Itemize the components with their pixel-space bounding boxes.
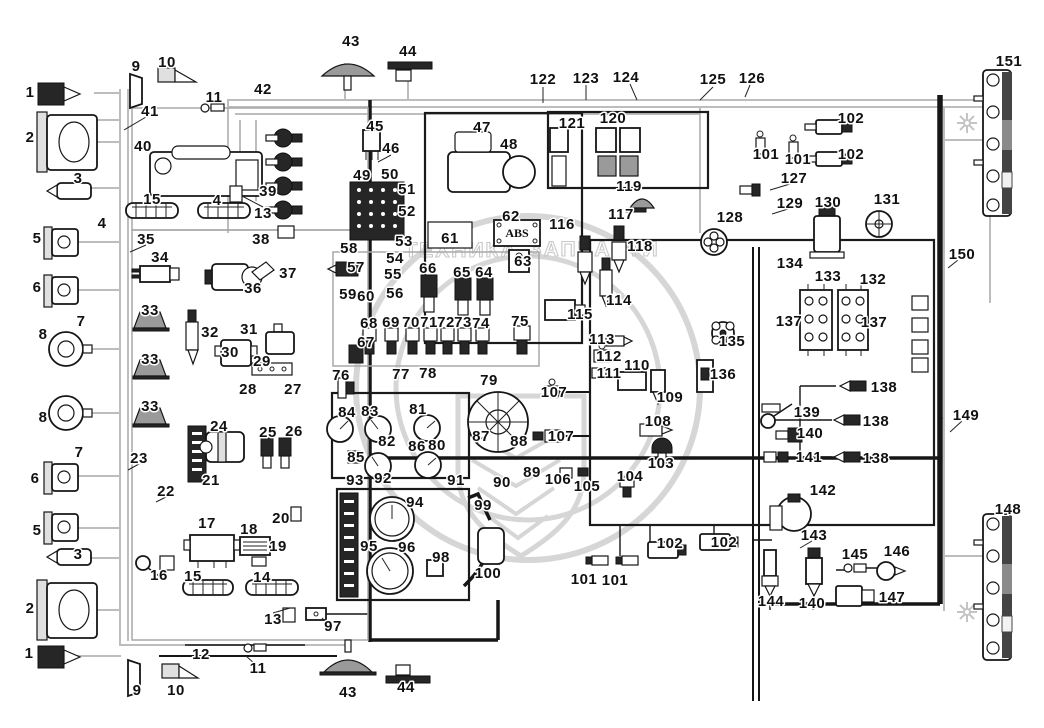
callout-121: 121: [559, 115, 586, 132]
callout-115: 115: [567, 306, 593, 323]
callout-92: 92: [374, 470, 392, 487]
callout-146: 146: [884, 543, 911, 560]
compressor: [770, 494, 811, 531]
solenoid: [810, 206, 844, 258]
callout-48: 48: [500, 136, 518, 153]
callout-6: 6: [33, 279, 42, 296]
callout-61: 61: [441, 230, 459, 247]
callout-139: 139: [794, 404, 821, 421]
callout-141: 141: [796, 449, 823, 466]
callout-33: 33: [141, 398, 159, 415]
callout-3: 3: [74, 546, 83, 563]
marker-lamp: [44, 462, 78, 494]
callout-38: 38: [252, 231, 270, 248]
callout-101: 101: [602, 572, 629, 589]
connector-plug: [278, 226, 294, 238]
inline-connector: [844, 564, 866, 572]
callout-37: 37: [279, 265, 297, 282]
callout-55: 55: [384, 266, 402, 283]
callout-128: 128: [717, 209, 744, 226]
callout-120: 120: [600, 110, 627, 127]
callout-101: 101: [571, 571, 598, 588]
callout-30: 30: [221, 344, 239, 361]
bullet-sensor: [834, 452, 860, 462]
marker-lamp: [44, 275, 78, 307]
callout-64: 64: [475, 264, 493, 281]
callout-7: 7: [77, 313, 86, 330]
callout-2: 2: [26, 129, 35, 146]
callout-113: 113: [589, 331, 615, 348]
callout-23: 23: [130, 450, 148, 467]
callout-66: 66: [419, 260, 437, 277]
connector-plug: [252, 557, 266, 566]
abs-label: ABS: [505, 226, 529, 240]
callout-117: 117: [608, 206, 634, 223]
front-lamp-cluster: [198, 203, 250, 218]
marker-lamp: [44, 512, 78, 544]
callout-8: 8: [39, 409, 48, 426]
wiring-diagram-canvas: ТЕХНИКА ЗАПЧАСТИ: [0, 0, 1044, 728]
callout-5: 5: [33, 522, 42, 539]
instrument-strip: [340, 493, 358, 597]
callout-72: 72: [437, 314, 455, 331]
callout-116: 116: [549, 216, 575, 233]
callout-143: 143: [801, 527, 828, 544]
callout-87: 87: [472, 428, 490, 445]
callout-118: 118: [627, 238, 653, 255]
callout-93: 93: [346, 472, 364, 489]
connector-plug: [283, 608, 295, 622]
callout-94: 94: [406, 494, 424, 511]
callout-6: 6: [31, 470, 40, 487]
callout-148: 148: [995, 501, 1022, 518]
repeater-lamp: [162, 664, 198, 678]
callout-10: 10: [158, 54, 176, 71]
callout-49: 49: [353, 167, 371, 184]
callout-8: 8: [39, 326, 48, 343]
fuse-box: [800, 284, 832, 356]
sensor: [612, 226, 626, 272]
callout-3: 3: [74, 170, 83, 187]
callout-42: 42: [254, 81, 272, 98]
callout-1: 1: [26, 84, 35, 101]
callout-44: 44: [397, 679, 415, 696]
callout-90: 90: [493, 474, 511, 491]
callout-102: 102: [657, 535, 684, 552]
callout-15: 15: [143, 191, 161, 208]
callout-112: 112: [596, 348, 622, 365]
fuse-link: [586, 556, 608, 565]
callout-39: 39: [259, 183, 277, 200]
relay-cylinder: [47, 549, 91, 565]
callout-85: 85: [347, 449, 365, 466]
callout-130: 130: [815, 194, 842, 211]
callout-104: 104: [617, 468, 644, 485]
connector: [578, 468, 588, 476]
callout-58: 58: [340, 240, 358, 257]
bullet-sensor: [834, 415, 860, 425]
callout-107: 107: [541, 384, 568, 401]
bullet-sensor: [840, 381, 866, 391]
resistor-block: [240, 537, 270, 555]
horn: [49, 396, 92, 430]
callout-124: 124: [613, 69, 640, 86]
callout-134: 134: [777, 255, 804, 272]
callout-41: 41: [141, 103, 159, 120]
callout-82: 82: [378, 433, 396, 450]
callout-53: 53: [395, 233, 413, 250]
callout-78: 78: [419, 365, 437, 382]
callout-125: 125: [700, 71, 727, 88]
callout-114: 114: [606, 292, 632, 309]
callout-13: 13: [254, 205, 272, 222]
callout-2: 2: [26, 600, 35, 617]
callout-1: 1: [25, 645, 34, 662]
starter-motor: [448, 132, 535, 192]
callout-89: 89: [523, 464, 541, 481]
callout-140: 140: [799, 595, 826, 612]
callout-140: 140: [797, 425, 824, 442]
callout-109: 109: [657, 389, 684, 406]
callout-29: 29: [253, 353, 271, 370]
callout-149: 149: [953, 407, 980, 424]
callout-17: 17: [198, 515, 216, 532]
callout-52: 52: [398, 203, 416, 220]
callout-100: 100: [475, 565, 502, 582]
callout-102: 102: [711, 534, 738, 551]
callout-22: 22: [157, 483, 175, 500]
callout-133: 133: [815, 268, 842, 285]
connector-plug: [291, 507, 301, 521]
callout-28: 28: [239, 381, 257, 398]
callout-44: 44: [399, 43, 417, 60]
callout-5: 5: [33, 230, 42, 247]
callout-67: 67: [357, 334, 375, 351]
callout-111: 111: [597, 365, 622, 382]
callout-46: 46: [382, 140, 400, 157]
rear-lamp-cluster: [974, 70, 1012, 216]
headlamp: [37, 580, 97, 640]
callout-13: 13: [264, 611, 282, 628]
callout-11: 11: [206, 89, 223, 106]
callout-132: 132: [860, 271, 887, 288]
callout-144: 144: [758, 593, 785, 610]
callout-151: 151: [996, 53, 1023, 70]
callout-20: 20: [272, 510, 290, 527]
callout-57: 57: [347, 259, 365, 276]
callout-24: 24: [210, 418, 228, 435]
callout-137: 137: [776, 313, 803, 330]
heater-unit: [150, 146, 262, 196]
callout-88: 88: [510, 433, 528, 450]
callout-62: 62: [502, 208, 520, 225]
callout-51: 51: [398, 181, 416, 198]
connector-plug: [230, 186, 242, 202]
callout-101: 101: [785, 151, 812, 168]
callout-110: 110: [624, 357, 650, 374]
connector-plug: [261, 438, 273, 468]
callout-33: 33: [141, 351, 159, 368]
relay-stack: [550, 128, 568, 186]
fuse-link: [616, 556, 638, 565]
callout-56: 56: [386, 285, 404, 302]
callout-135: 135: [719, 333, 746, 350]
callout-97: 97: [324, 618, 342, 635]
callout-73: 73: [454, 314, 472, 331]
callout-36: 36: [244, 280, 262, 297]
bulb: [877, 562, 905, 580]
callout-35: 35: [137, 231, 155, 248]
connector-plug: [477, 278, 493, 315]
callout-81: 81: [409, 401, 427, 418]
motor-cylinder: [200, 432, 244, 462]
callout-84: 84: [338, 404, 356, 421]
callout-138: 138: [863, 450, 890, 467]
headlamp: [37, 112, 97, 172]
callout-138: 138: [863, 413, 890, 430]
callout-60: 60: [357, 288, 375, 305]
ignition-coil: [266, 324, 294, 354]
horn-disc: [701, 229, 727, 255]
callout-131: 131: [874, 191, 901, 208]
wiring-diagram-page: ТЕХНИКА ЗАПЧАСТИ: [0, 0, 1044, 728]
connector-ladder: [912, 296, 928, 372]
relay-cylinder: [47, 183, 91, 199]
callout-142: 142: [810, 482, 837, 499]
callout-105: 105: [574, 478, 601, 495]
callout-9: 9: [132, 58, 141, 75]
callout-108: 108: [645, 413, 672, 430]
motor: [866, 211, 892, 237]
callout-127: 127: [781, 170, 808, 187]
callout-12: 12: [192, 646, 210, 663]
callout-80: 80: [428, 437, 446, 454]
callout-4: 4: [213, 192, 222, 209]
callout-63: 63: [514, 253, 532, 270]
callout-25: 25: [259, 424, 277, 441]
gauge: [415, 452, 441, 478]
callout-43: 43: [342, 33, 360, 50]
fog-lamp: [38, 646, 80, 668]
multi-pin-plug: [132, 266, 179, 282]
fog-lamp: [38, 83, 80, 105]
callout-47: 47: [473, 119, 491, 136]
callout-102: 102: [838, 110, 865, 127]
lever-switch: [761, 404, 792, 428]
inline-connector: [244, 644, 266, 652]
callout-27: 27: [284, 381, 302, 398]
callout-150: 150: [949, 246, 976, 263]
callout-126: 126: [739, 70, 766, 87]
callout-123: 123: [573, 70, 600, 87]
horn: [49, 332, 92, 366]
callout-26: 26: [285, 423, 303, 440]
connector-pair: [740, 184, 760, 196]
callout-119: 119: [616, 178, 642, 195]
callout-34: 34: [151, 249, 169, 266]
callout-76: 76: [332, 367, 350, 384]
callout-75: 75: [511, 313, 529, 330]
callout-32: 32: [201, 324, 219, 341]
spark-plug: [186, 310, 198, 364]
callout-107: 107: [548, 428, 575, 445]
callout-59: 59: [339, 286, 357, 303]
callout-129: 129: [777, 195, 804, 212]
callout-98: 98: [432, 549, 450, 566]
callout-145: 145: [842, 546, 869, 563]
sensor: [806, 548, 822, 596]
callout-96: 96: [398, 539, 416, 556]
plug-row: [363, 328, 489, 354]
callout-15: 15: [184, 568, 202, 585]
callout-14: 14: [253, 569, 271, 586]
callout-86: 86: [408, 438, 426, 455]
callout-68: 68: [360, 315, 378, 332]
connector-plug: [455, 278, 471, 315]
callout-4: 4: [98, 215, 107, 232]
ecu-box: [184, 535, 240, 568]
callout-54: 54: [386, 250, 404, 267]
callout-74: 74: [472, 315, 490, 332]
callout-137: 137: [861, 314, 888, 331]
callout-18: 18: [240, 521, 258, 538]
callout-43: 43: [339, 684, 357, 701]
callout-40: 40: [134, 138, 152, 155]
connector-plug: [514, 326, 530, 354]
connector-plug: [279, 438, 291, 468]
callout-69: 69: [382, 314, 400, 331]
callout-16: 16: [150, 567, 168, 584]
callout-9: 9: [133, 682, 142, 699]
fuse-relay-block: [350, 182, 404, 240]
callout-11: 11: [250, 660, 267, 677]
callout-99: 99: [474, 497, 492, 514]
callout-77: 77: [392, 366, 410, 383]
relay-pair: [596, 128, 640, 176]
screw-sparkle-icon: [957, 113, 977, 133]
rear-lamp-cluster: [974, 514, 1012, 660]
callout-33: 33: [141, 302, 159, 319]
callout-65: 65: [453, 264, 471, 281]
callout-138: 138: [871, 379, 898, 396]
switch-box: [618, 372, 646, 390]
callout-79: 79: [480, 372, 498, 389]
callout-21: 21: [202, 472, 220, 489]
plafond-lamp: [322, 64, 374, 90]
callout-102: 102: [838, 146, 865, 163]
callout-7: 7: [75, 444, 84, 461]
callout-103: 103: [648, 455, 675, 472]
callout-50: 50: [381, 166, 399, 183]
callout-95: 95: [360, 538, 378, 555]
callout-71: 71: [420, 314, 438, 331]
callout-19: 19: [269, 538, 287, 555]
callout-91: 91: [447, 472, 465, 489]
callout-122: 122: [530, 71, 557, 88]
connector-pair: [764, 452, 788, 462]
components: ABS: [37, 62, 1012, 696]
callout-136: 136: [710, 366, 737, 383]
callout-147: 147: [879, 589, 906, 606]
callout-106: 106: [545, 471, 572, 488]
callout-70: 70: [402, 314, 420, 331]
junction-connector: [306, 608, 326, 620]
plate-lamp: [388, 62, 432, 81]
callout-45: 45: [366, 118, 384, 135]
callout-83: 83: [361, 403, 379, 420]
sensor: [762, 550, 778, 596]
callout-10: 10: [167, 682, 185, 699]
marker-lamp: [44, 227, 78, 259]
callout-31: 31: [240, 321, 258, 338]
callout-101: 101: [753, 146, 780, 163]
